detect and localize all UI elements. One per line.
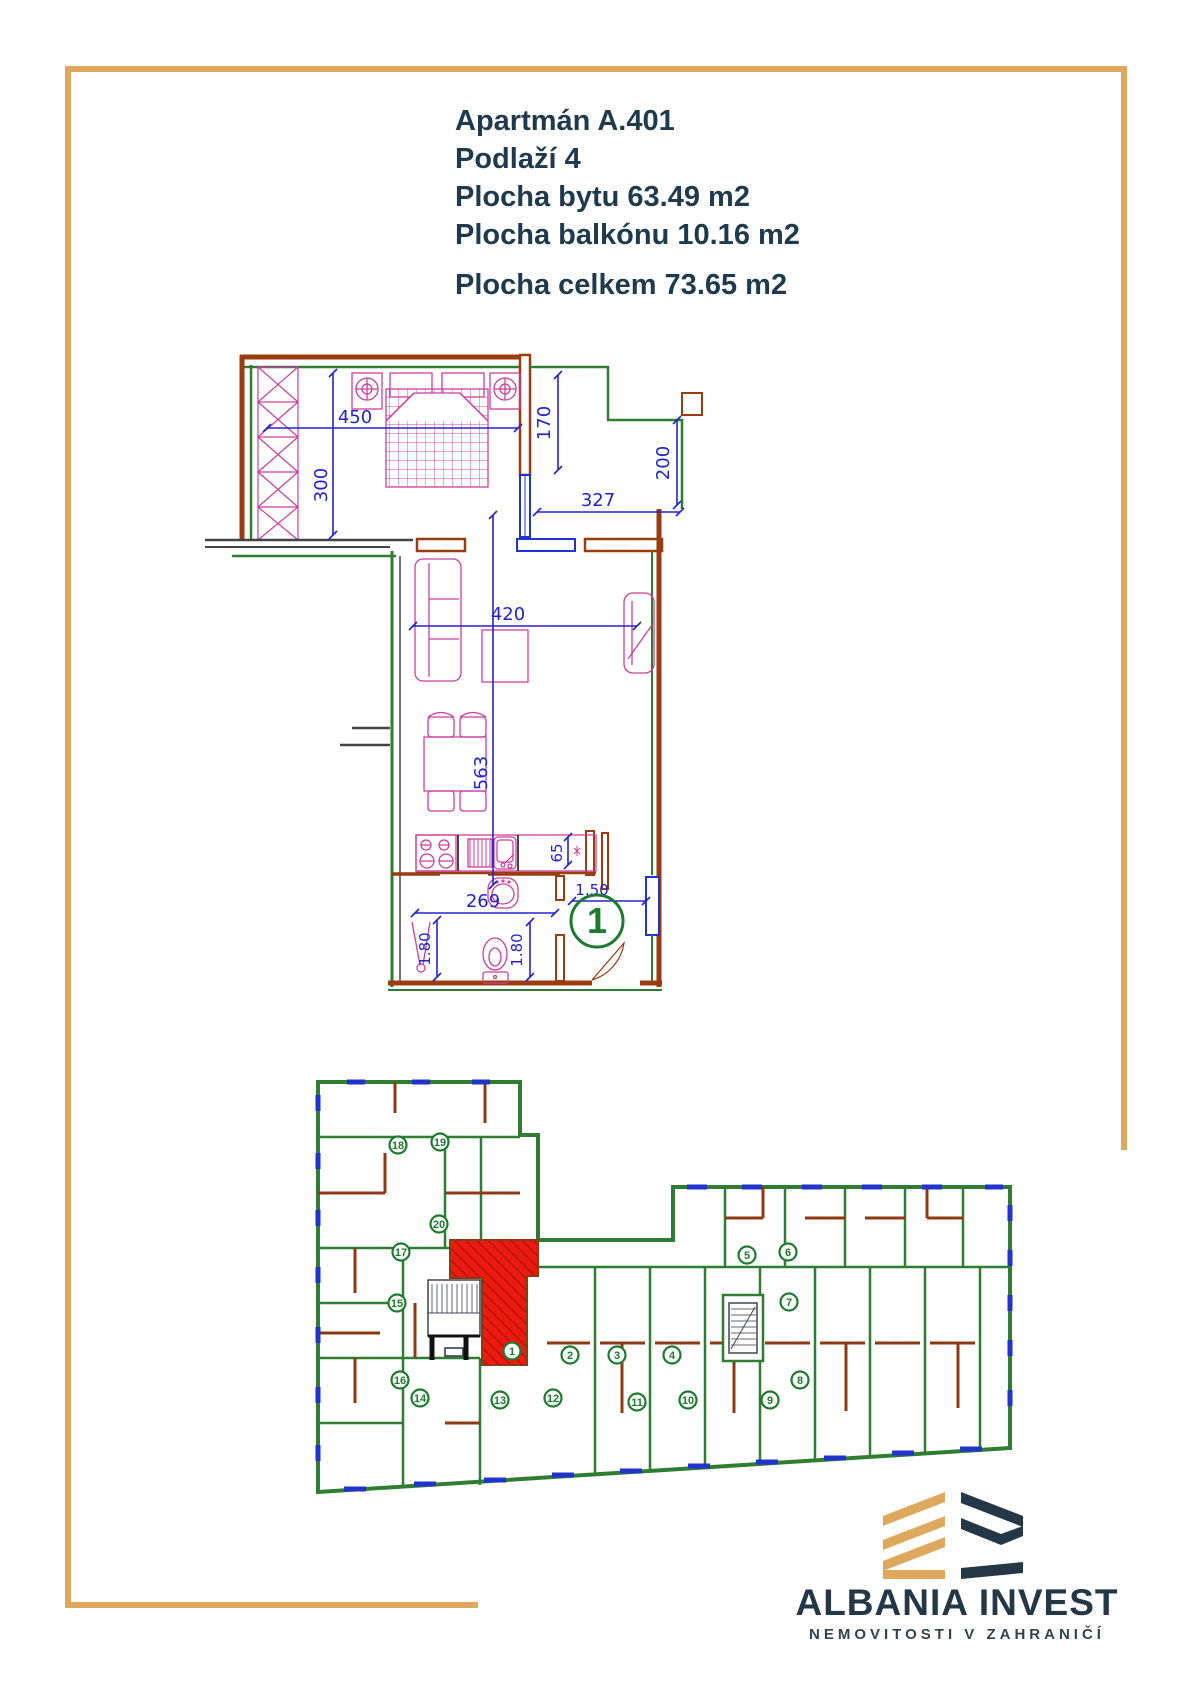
page: { "header": { "line1": "Apartmán A.401",… (0, 0, 1190, 1684)
unit-number-marker: 1 (571, 895, 623, 947)
apartment-floor-plan: 450 300 170 327 200 420 563 65 269 1.80 … (200, 325, 710, 995)
apartment-title: Apartmán A.401 (455, 102, 800, 140)
kitchen-counter (416, 835, 596, 873)
marker-19: 19 (434, 1137, 446, 1149)
frame-top-line (65, 66, 1127, 72)
dim-bedroom-depth: 300 (311, 468, 332, 502)
dim-terrace-width: 327 (581, 490, 615, 511)
apartment-floor: Podlaží 4 (455, 140, 800, 178)
corridor-walls (205, 539, 662, 556)
logo-building-gold (883, 1492, 945, 1579)
marker-9: 9 (767, 1395, 773, 1407)
dim-wc: 1.80 (508, 933, 526, 966)
marker-17: 17 (395, 1247, 407, 1259)
right-staircase (723, 1295, 763, 1361)
balcony-area: Plocha balkónu 10.16 m2 (455, 216, 800, 254)
bed (352, 373, 520, 487)
logo-building-navy (961, 1492, 1023, 1579)
marker-2: 2 (567, 1350, 573, 1362)
brand-name: ALBANIA INVEST (770, 1582, 1144, 1624)
dim-counter: 65 (548, 843, 566, 862)
dim-shower: 1.80 (416, 932, 434, 965)
dim-living-length: 563 (471, 756, 492, 790)
apartment-area: Plocha bytu 63.49 m2 (455, 178, 800, 216)
marker-5: 5 (744, 1250, 750, 1262)
total-area: Plocha celkem 73.65 m2 (455, 266, 800, 304)
dim-terrace-left: 170 (534, 406, 555, 440)
marker-13: 13 (494, 1395, 506, 1407)
frame-left-line (65, 66, 71, 1608)
coffee-table (482, 630, 528, 682)
marker-20: 20 (433, 1219, 445, 1231)
sofa (415, 559, 461, 681)
wardrobe (258, 367, 298, 540)
marker-8: 8 (797, 1375, 803, 1387)
apartment-info: Apartmán A.401 Podlaží 4 Plocha bytu 63.… (455, 102, 800, 304)
living-walls (340, 509, 662, 990)
building-outline (318, 1082, 1010, 1492)
marker-3: 3 (614, 1350, 620, 1362)
dim-bathroom-width: 269 (466, 891, 500, 912)
armchair (624, 593, 654, 673)
marker-4: 4 (669, 1350, 676, 1362)
marker-14: 14 (414, 1393, 427, 1405)
unit-number: 1 (587, 900, 607, 941)
building-overview-plan: 1 2 3 4 5 6 7 8 9 10 11 12 13 14 15 16 1… (295, 1003, 1015, 1498)
dim-living-width: 420 (491, 604, 525, 625)
marker-6: 6 (785, 1247, 791, 1259)
marker-16: 16 (394, 1375, 406, 1387)
marker-11: 11 (631, 1397, 643, 1409)
marker-1: 1 (509, 1346, 515, 1358)
dim-bedroom-width: 450 (338, 407, 372, 428)
frame-right-line (1121, 66, 1127, 1150)
marker-15: 15 (391, 1298, 403, 1310)
marker-7: 7 (786, 1297, 792, 1309)
toilet (483, 938, 508, 983)
dim-terrace-right: 200 (653, 446, 674, 480)
marker-10: 10 (682, 1395, 694, 1407)
marker-18: 18 (392, 1140, 404, 1152)
marker-12: 12 (547, 1393, 559, 1405)
frame-bottom-line (65, 1602, 478, 1608)
albania-invest-logo-icon (873, 1482, 1033, 1582)
brand-tagline: NEMOVITOSTI V ZAHRANIČÍ (770, 1626, 1144, 1643)
